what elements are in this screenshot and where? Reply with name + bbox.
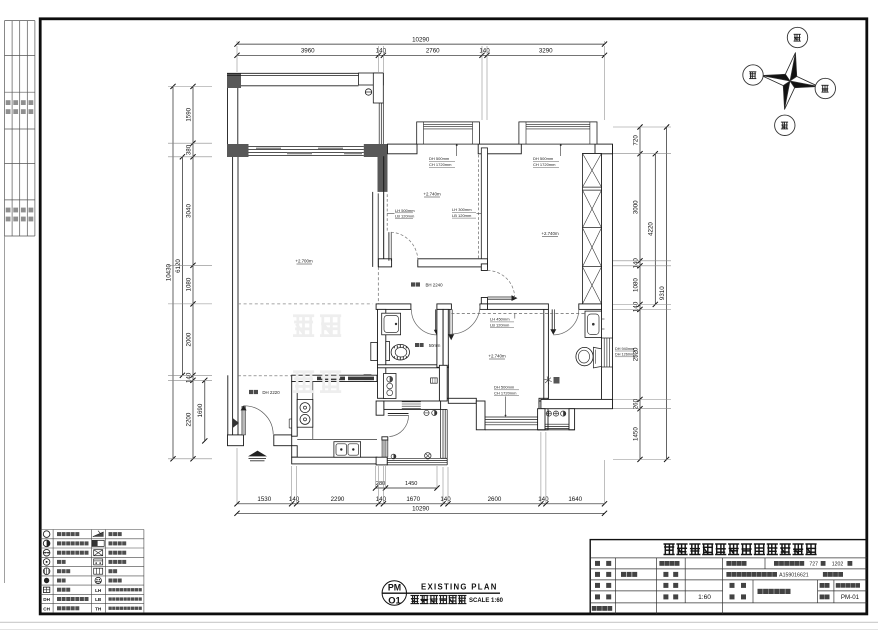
svg-text:720: 720 — [632, 135, 639, 146]
svg-text:4220: 4220 — [648, 222, 655, 236]
svg-text:2000: 2000 — [185, 332, 192, 346]
svg-text:2520: 2520 — [632, 347, 639, 361]
svg-text:140: 140 — [538, 496, 549, 503]
svg-text:BH 2240: BH 2240 — [425, 282, 443, 287]
svg-text:CH 1720mm: CH 1720mm — [533, 162, 556, 167]
svg-text:DH: DH — [43, 597, 50, 602]
svg-text:2600: 2600 — [488, 496, 502, 503]
svg-text:1450: 1450 — [405, 481, 417, 487]
svg-text:1530: 1530 — [257, 496, 271, 503]
svg-text:140: 140 — [440, 496, 451, 503]
svg-text:140: 140 — [289, 496, 300, 503]
svg-text:140: 140 — [632, 258, 639, 269]
svg-text:DH 2220: DH 2220 — [262, 390, 280, 395]
svg-text:PM: PM — [388, 582, 401, 592]
svg-text:140: 140 — [376, 496, 387, 503]
svg-text:50mm: 50mm — [429, 343, 441, 348]
svg-text:+2.700m: +2.700m — [295, 259, 313, 264]
svg-text:2760: 2760 — [426, 48, 440, 55]
svg-text:DH 940mm: DH 940mm — [615, 347, 634, 351]
svg-text:1450: 1450 — [632, 427, 639, 441]
svg-text:2200: 2200 — [185, 412, 192, 426]
svg-text:3040: 3040 — [185, 204, 192, 218]
svg-text:10430: 10430 — [165, 263, 172, 281]
svg-text:CH: CH — [43, 606, 50, 611]
svg-text:LB 120mm: LB 120mm — [395, 214, 415, 219]
svg-text:1640: 1640 — [568, 496, 582, 503]
svg-text:1202: 1202 — [832, 561, 844, 567]
svg-text:140: 140 — [479, 48, 490, 55]
svg-text:LB: LB — [95, 597, 102, 602]
svg-text:260: 260 — [632, 398, 639, 409]
svg-text:DH 500mm: DH 500mm — [533, 156, 554, 161]
svg-text:1670: 1670 — [406, 496, 420, 503]
svg-text:1080: 1080 — [632, 278, 639, 292]
svg-text:380: 380 — [185, 144, 192, 155]
svg-text:140: 140 — [185, 372, 192, 383]
svg-text:1590: 1590 — [185, 107, 192, 121]
svg-text:727: 727 — [809, 561, 818, 567]
svg-text:1080: 1080 — [185, 277, 192, 291]
svg-text:O1: O1 — [388, 594, 401, 605]
svg-text:DH 500mm: DH 500mm — [494, 385, 515, 390]
svg-text:2290: 2290 — [331, 496, 345, 503]
svg-text:10290: 10290 — [412, 36, 430, 43]
svg-text:+2.740m: +2.740m — [423, 192, 441, 197]
svg-text:DH 500mm: DH 500mm — [429, 156, 450, 161]
svg-text:SCALE 1:60: SCALE 1:60 — [469, 598, 504, 604]
svg-text:1690: 1690 — [197, 403, 204, 417]
svg-text:+2.740m: +2.740m — [488, 354, 506, 359]
svg-text:CH 1720mm: CH 1720mm — [429, 162, 452, 167]
svg-text:A159016621: A159016621 — [779, 572, 809, 578]
svg-text:9310: 9310 — [659, 286, 666, 300]
svg-text:TH: TH — [95, 606, 102, 611]
svg-text:EXISTING PLAN: EXISTING PLAN — [421, 583, 498, 592]
svg-text:6120: 6120 — [175, 259, 182, 273]
svg-text:LH: LH — [95, 588, 102, 593]
svg-text:140: 140 — [632, 301, 639, 312]
svg-text:10290: 10290 — [412, 506, 430, 513]
svg-text:LB 120mm: LB 120mm — [452, 213, 472, 218]
svg-text:CH 1720mm: CH 1720mm — [494, 390, 517, 395]
svg-text:LH 300mm: LH 300mm — [452, 207, 472, 212]
svg-text:LH 500mm: LH 500mm — [395, 208, 415, 213]
svg-text:+2.740m: +2.740m — [541, 231, 559, 236]
svg-text:3960: 3960 — [301, 48, 315, 55]
svg-text:3000: 3000 — [632, 200, 639, 214]
svg-text:LH 450mm: LH 450mm — [490, 317, 510, 322]
svg-text:3290: 3290 — [539, 48, 553, 55]
svg-text:140: 140 — [376, 48, 387, 55]
svg-text:LB 120mm: LB 120mm — [490, 323, 510, 328]
svg-text:PM-01: PM-01 — [841, 594, 860, 601]
svg-text:280: 280 — [376, 481, 385, 487]
svg-text:1:60: 1:60 — [698, 594, 711, 601]
